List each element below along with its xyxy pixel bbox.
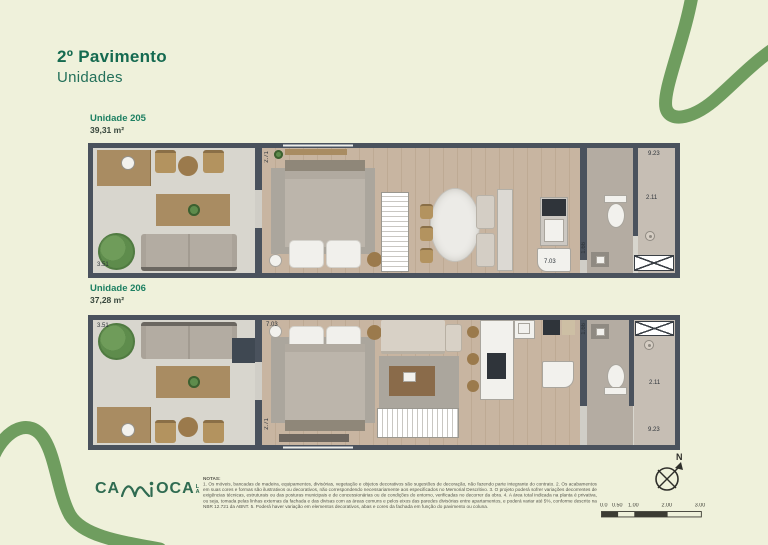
dimension-label: 3.51 xyxy=(97,262,109,268)
table-plant xyxy=(188,376,200,388)
sink-basin xyxy=(596,328,605,336)
sofa xyxy=(141,322,237,359)
unit-205-name: Unidade 205 xyxy=(90,113,146,124)
nightstand xyxy=(367,252,382,267)
wardrobe xyxy=(381,192,409,272)
dimension-label: 2.71 xyxy=(264,151,270,163)
nightstand xyxy=(367,325,382,340)
window xyxy=(283,144,353,147)
round-table xyxy=(178,417,198,437)
notes-block: NOTAS: 1. Os móveis, bancadas de madeira… xyxy=(203,477,597,511)
shower-drain xyxy=(644,340,654,350)
dimension-label: 7.03 xyxy=(266,322,278,328)
floorplan-unit-206: 3.51 7.03 2.71 xyxy=(88,315,680,450)
sofa xyxy=(141,234,237,271)
dimension-label: 1.66 xyxy=(581,323,587,335)
dining-chair xyxy=(420,204,433,219)
table-plant xyxy=(188,204,200,216)
doorway xyxy=(255,190,262,228)
compass-n-label: N xyxy=(676,452,683,462)
dimension-label: 2.11 xyxy=(646,195,657,201)
dimension-label: 7.03 xyxy=(544,259,556,265)
bed xyxy=(285,344,365,420)
logo-tag: L A xyxy=(196,485,200,495)
scale-label: 1.00 xyxy=(628,503,639,508)
oven xyxy=(543,320,560,335)
toilet xyxy=(607,203,625,228)
bar-stool xyxy=(467,353,479,365)
divider-wall xyxy=(255,228,262,273)
wall-shelf xyxy=(285,149,347,155)
window xyxy=(283,446,353,449)
dining-chair xyxy=(420,226,433,241)
unit-206-name: Unidade 206 xyxy=(90,283,146,294)
pillow xyxy=(326,240,361,268)
logo-tag-bottom: A xyxy=(196,490,200,495)
bench-cushion xyxy=(476,195,495,229)
bathroom-doorway xyxy=(580,260,587,273)
bed-headboard xyxy=(285,160,365,171)
bar-stool xyxy=(467,326,479,338)
dining-chair xyxy=(155,150,176,173)
pendant-lamp xyxy=(121,156,135,170)
dimension-label: 3.51 xyxy=(97,323,109,329)
cooktop xyxy=(487,353,506,379)
decorative-curve-top-right xyxy=(600,0,768,140)
bar-stool xyxy=(467,380,479,392)
logo-mountain-icon xyxy=(121,480,155,497)
dimension-label: 9.23 xyxy=(648,151,660,157)
carioca-logo: CA OCA L A xyxy=(95,480,200,496)
toilet xyxy=(607,364,625,389)
bed-headboard xyxy=(285,420,365,431)
lounge-sofa xyxy=(381,320,445,354)
table-tray xyxy=(403,372,416,382)
scale-label: 0.50 xyxy=(612,503,623,508)
logo-text-right: OCA xyxy=(156,482,195,496)
fridge xyxy=(542,361,574,388)
logo-text-left: CA xyxy=(95,482,120,496)
dining-chair xyxy=(420,248,433,263)
appliance xyxy=(562,320,575,335)
cooktop xyxy=(542,199,566,216)
shower-drain xyxy=(645,231,655,241)
pendant-lamp xyxy=(121,423,135,437)
dimension-label: 9.23 xyxy=(648,427,660,433)
bathroom-doorway xyxy=(580,406,587,445)
toilet-tank xyxy=(604,195,627,203)
divider-wall xyxy=(255,148,262,190)
pillow xyxy=(289,240,324,268)
unit-205-area: 39,31 m² xyxy=(90,125,124,135)
divider-wall xyxy=(255,320,262,362)
washing-machine xyxy=(635,321,674,336)
floorplan-unit-205: 3.51 2.71 xyxy=(88,143,680,278)
toilet-tank xyxy=(604,387,627,395)
wardrobe xyxy=(377,408,459,438)
unit-205-floor: 3.51 2.71 xyxy=(93,148,675,273)
scale-label: 0.0 xyxy=(600,503,608,508)
dining-chair xyxy=(155,420,176,443)
unit-206-area: 37,28 m² xyxy=(90,295,124,305)
scale-bar: 0.0 0.50 1.00 2.00 3.00 xyxy=(601,503,709,521)
kitchen-sink xyxy=(544,219,564,242)
bench-cushion xyxy=(476,233,495,267)
dining-chair xyxy=(203,150,224,173)
round-table xyxy=(178,156,198,176)
bench xyxy=(279,434,349,442)
dining-chair xyxy=(203,420,224,443)
entry-door xyxy=(232,338,257,363)
page-title: 2º Pavimento xyxy=(57,47,167,67)
dimension-label: 2.71 xyxy=(264,418,270,430)
sink-basin xyxy=(596,256,605,264)
scale-label: 3.00 xyxy=(695,503,706,508)
compass: N xyxy=(650,448,692,505)
unit-206-floor: 3.51 7.03 2.71 xyxy=(93,320,675,445)
dimension-label: 1.66 xyxy=(581,242,587,254)
scale-bar-ruler xyxy=(601,511,702,517)
notes-body: 1. Os móveis, bancadas de madeira, equip… xyxy=(203,482,597,510)
armchair xyxy=(445,324,462,352)
page-subtitle: Unidades xyxy=(57,69,123,86)
shelf-plant xyxy=(274,150,283,159)
divider-wall xyxy=(255,400,262,445)
kitchen-sink xyxy=(518,323,530,334)
stool xyxy=(269,254,282,267)
brochure-page: 2º Pavimento Unidades Unidade 205 39,31 … xyxy=(0,0,768,545)
tall-cabinet xyxy=(497,189,513,271)
dimension-label: 2.11 xyxy=(649,380,660,386)
bed xyxy=(285,171,365,247)
dining-table xyxy=(430,188,480,262)
doorway xyxy=(255,362,262,400)
washing-machine xyxy=(634,255,674,271)
scale-label: 2.00 xyxy=(661,503,672,508)
